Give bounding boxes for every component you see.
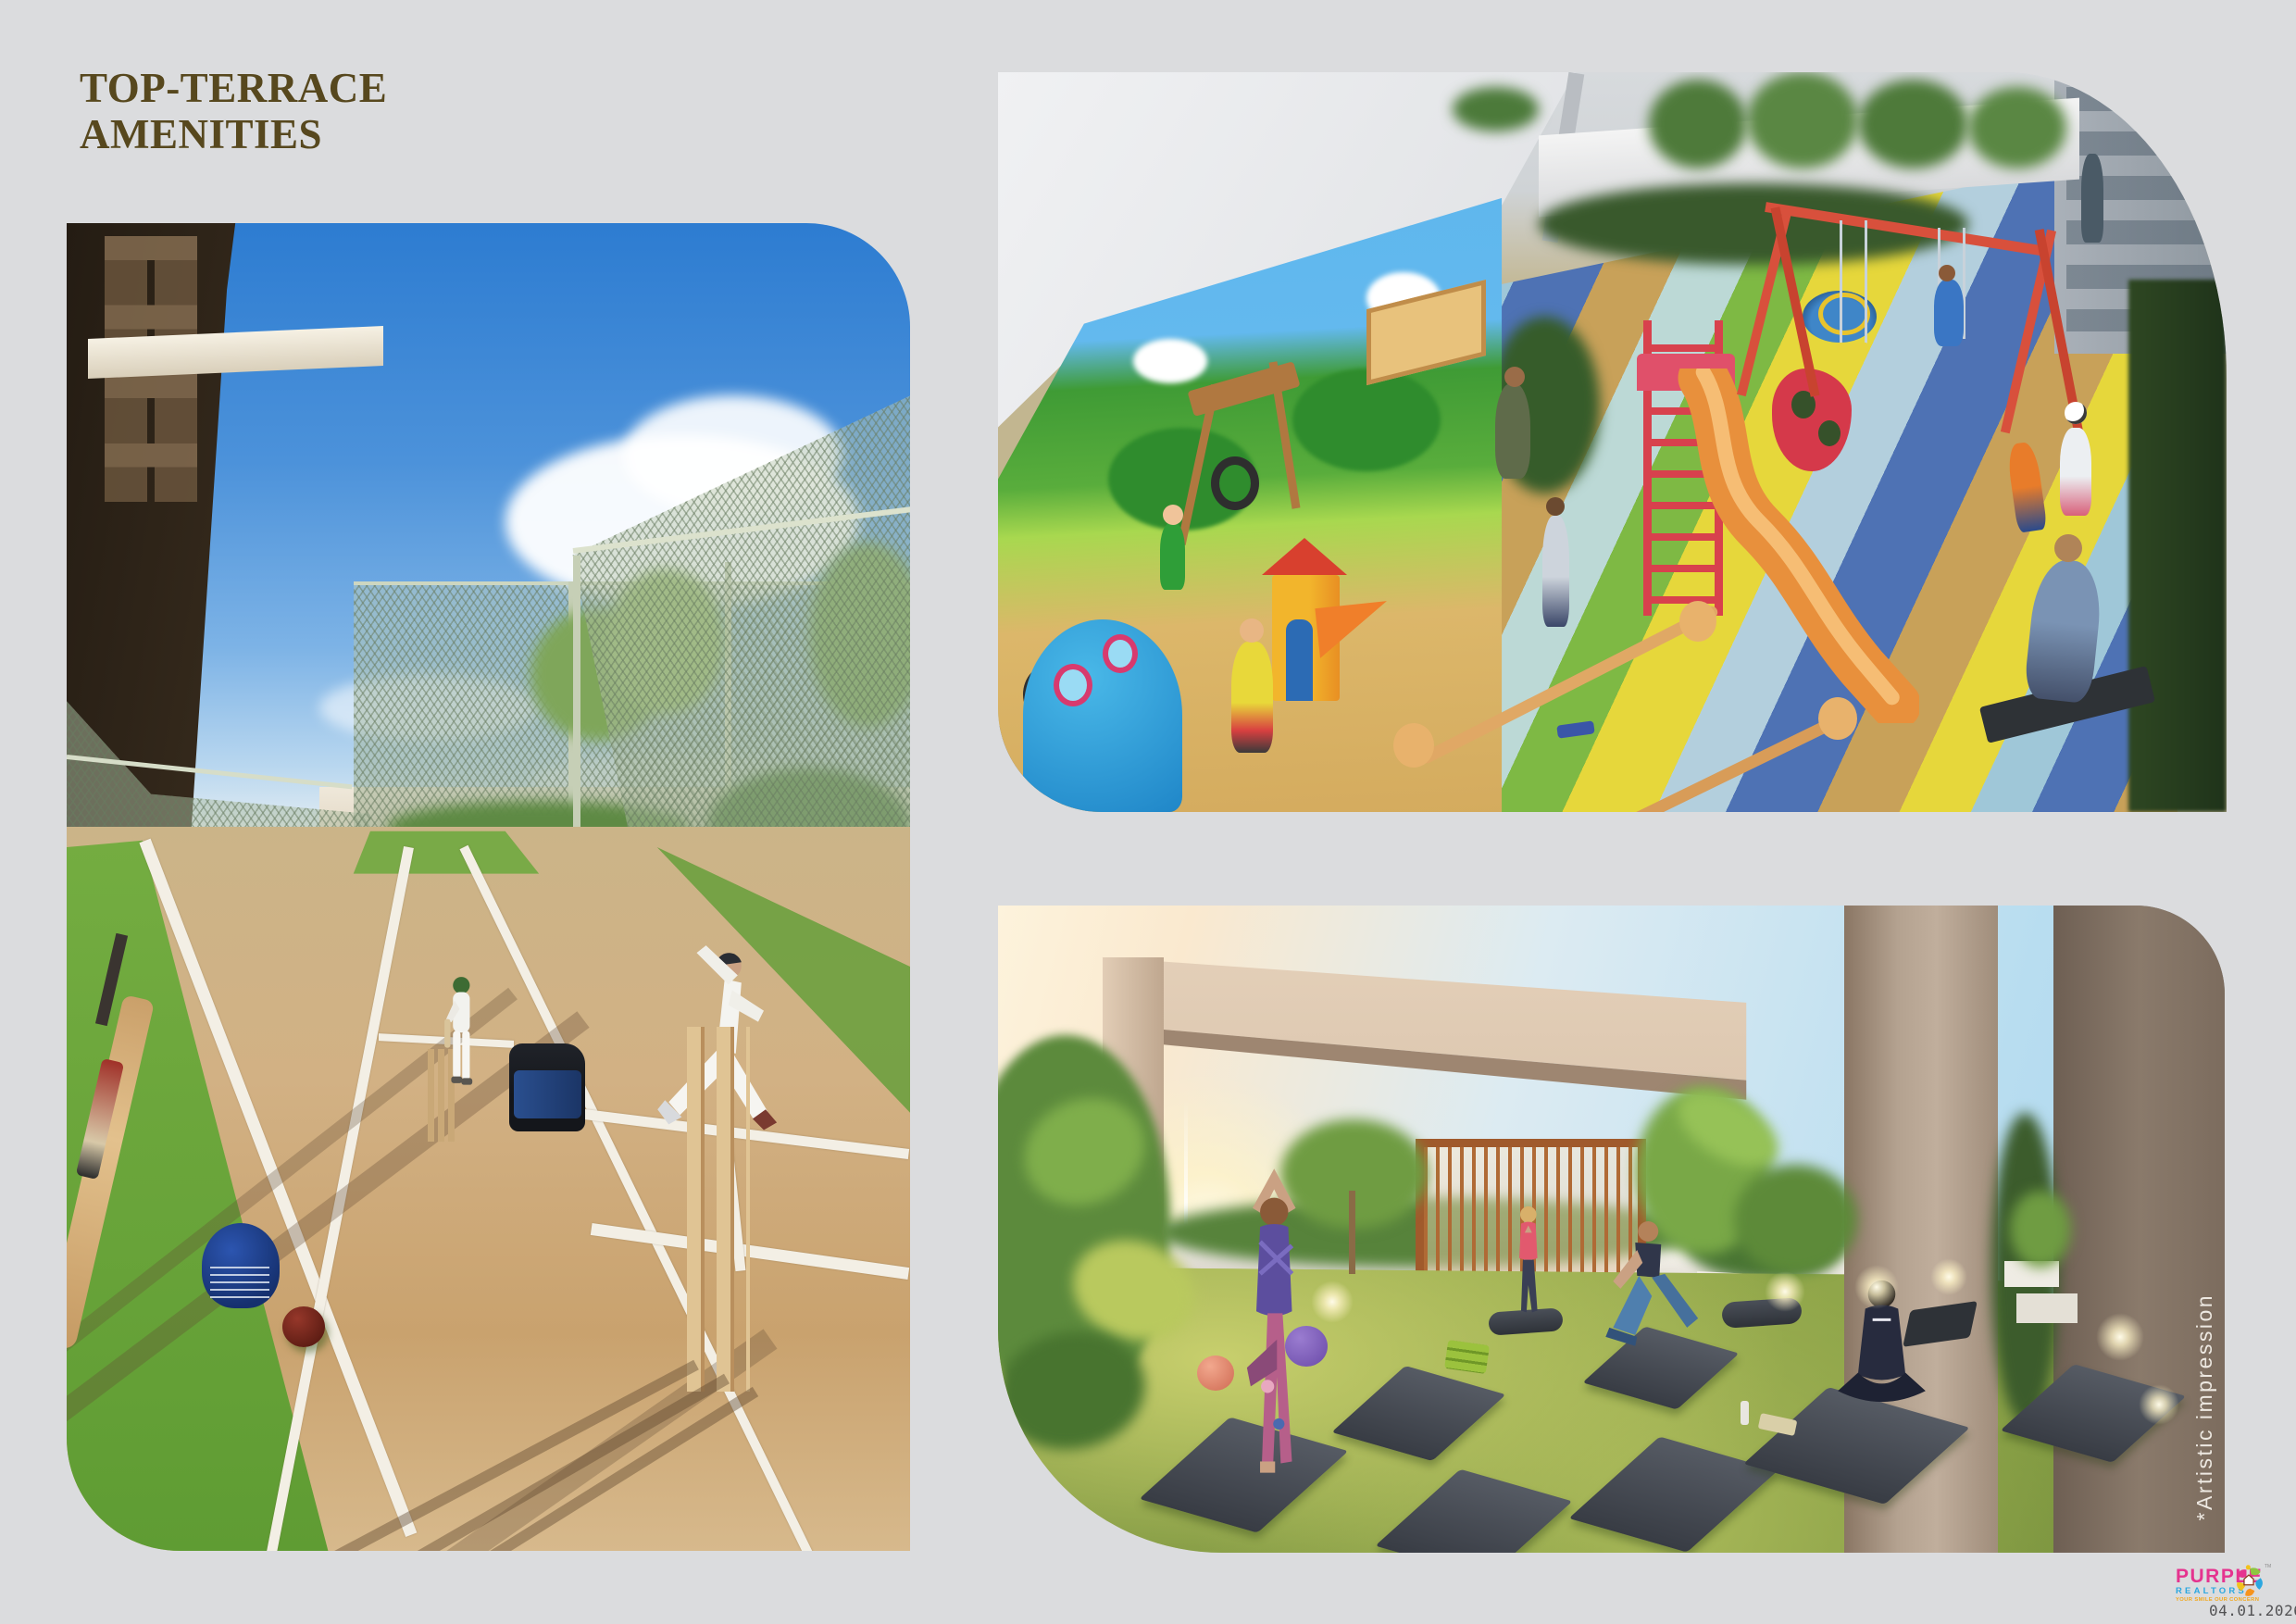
mural-dome-hole bbox=[1103, 634, 1138, 673]
kit-bag-panel bbox=[514, 1070, 581, 1118]
crouching-man-head bbox=[1504, 367, 1525, 387]
near-stumps bbox=[687, 1027, 749, 1392]
artistic-impression-note: *Artistic impression bbox=[2192, 1184, 2217, 1520]
yellow-boy-head bbox=[1240, 618, 1264, 643]
logo-brand-text: PURPLE bbox=[2176, 1568, 2233, 1586]
page-title-line1: TOP-TERRACE bbox=[80, 65, 387, 111]
page-title: TOP-TERRACE AMENITIES bbox=[80, 65, 387, 157]
mural-cloud bbox=[1133, 339, 1207, 383]
crouching-man bbox=[1495, 383, 1529, 480]
palm bbox=[1968, 87, 2066, 169]
batsman-figure bbox=[436, 940, 483, 1145]
logo-star-icon bbox=[2231, 1564, 2266, 1599]
playground-render bbox=[998, 72, 2227, 812]
standing-girl bbox=[1542, 516, 1569, 627]
purple-realtors-logo: PURPLE REALTORS YOUR SMILE OUR CONCERN T… bbox=[2176, 1564, 2268, 1601]
palm-cluster bbox=[1734, 1165, 1857, 1275]
swing-seat bbox=[1836, 343, 1868, 350]
palm bbox=[1747, 72, 1857, 169]
palm bbox=[1858, 80, 1968, 169]
date-stamp: 04.01.2026 bbox=[2209, 1602, 2296, 1619]
corner-post bbox=[573, 556, 580, 847]
palm-trunk bbox=[1349, 1191, 1355, 1275]
mural-tire bbox=[1211, 456, 1259, 510]
logo-tm-mark: TM bbox=[2265, 1564, 2271, 1569]
mural-playhouse-roof bbox=[1262, 538, 1347, 575]
page-title-line2: AMENITIES bbox=[80, 111, 387, 157]
wall-light bbox=[1765, 1271, 1805, 1312]
swing-chain bbox=[1865, 220, 1867, 346]
planter-step bbox=[2016, 1293, 2078, 1322]
right-hedge bbox=[2128, 280, 2227, 812]
ball-kid bbox=[2060, 428, 2092, 517]
parapet-woman bbox=[2081, 154, 2103, 243]
mural-kid-runner bbox=[1160, 523, 1185, 590]
logo-sub-text: REALTORS bbox=[2176, 1586, 2233, 1596]
namaste-woman bbox=[1501, 1204, 1556, 1340]
climber-hole bbox=[1818, 420, 1841, 446]
planter-top bbox=[1453, 87, 1539, 131]
palm bbox=[1649, 80, 1747, 169]
wall-light bbox=[1930, 1258, 1967, 1295]
wall-light bbox=[1854, 1265, 1899, 1309]
yoga-lawn-render: *Artistic impression bbox=[998, 906, 2225, 1553]
yellow-jacket-boy bbox=[1231, 642, 1273, 753]
merry-bars bbox=[1818, 293, 1869, 335]
wall-light bbox=[2096, 1313, 2144, 1361]
mural-playhouse-door bbox=[1286, 619, 1313, 701]
wall-light bbox=[1311, 1280, 1354, 1323]
mural-slide-wedge bbox=[1315, 601, 1391, 658]
step-blocks bbox=[1444, 1340, 1490, 1374]
water-bottle bbox=[1741, 1401, 1749, 1425]
swing-kid bbox=[1934, 280, 1964, 346]
cricket-net-render bbox=[67, 223, 910, 1551]
tree-pose-woman bbox=[1213, 1152, 1336, 1527]
helmet-grill bbox=[210, 1267, 269, 1298]
lunge-woman bbox=[1593, 1217, 1716, 1379]
swing-chain bbox=[1840, 220, 1842, 346]
mural-dome-hole bbox=[1054, 664, 1092, 706]
brochure-page: { "page": { "background_color": "#dbdcde… bbox=[0, 0, 2296, 1624]
soccer-ball bbox=[2065, 402, 2087, 424]
